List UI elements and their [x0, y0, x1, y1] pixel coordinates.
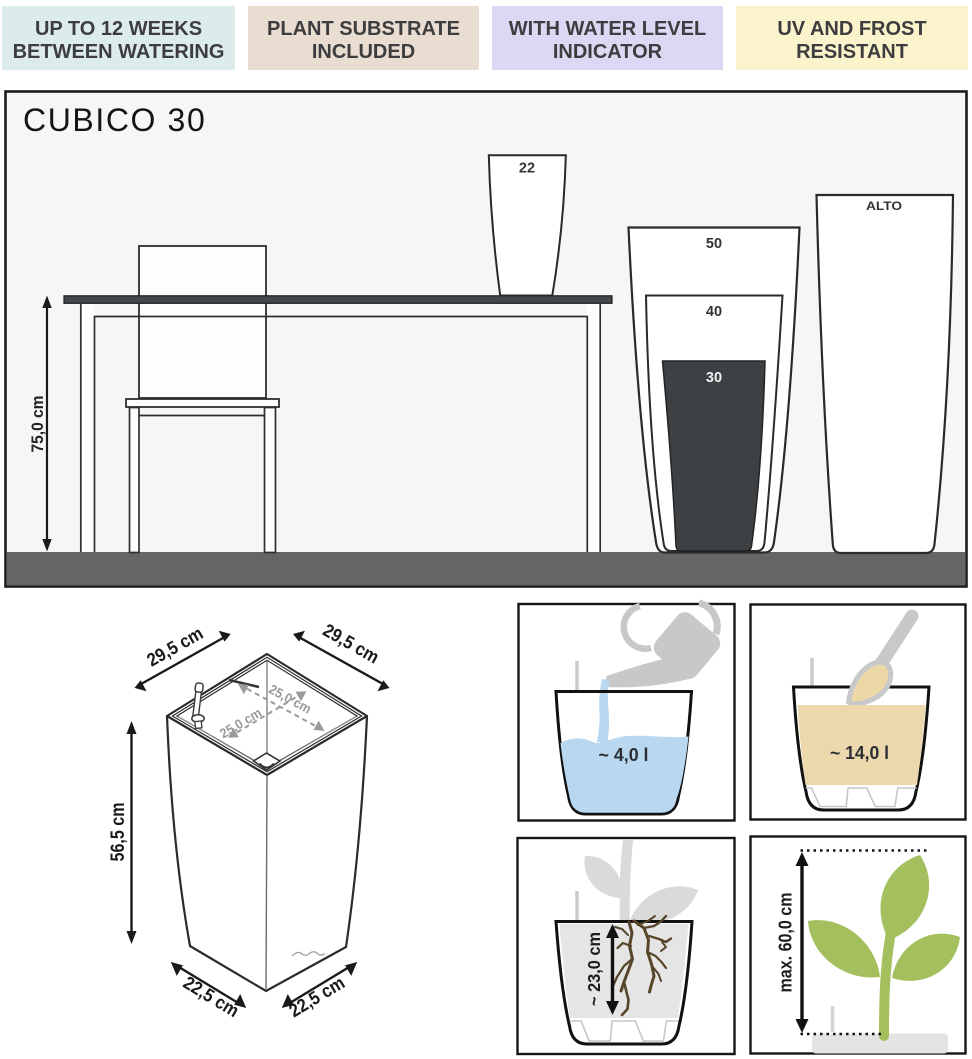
svg-text:75,0 cm: 75,0 cm: [29, 396, 47, 453]
svg-text:UP TO 12 WEEKS: UP TO 12 WEEKS: [35, 18, 202, 40]
svg-text:max. 60,0 cm: max. 60,0 cm: [776, 893, 796, 993]
svg-text:BETWEEN WATERING: BETWEEN WATERING: [13, 41, 225, 63]
svg-text:CUBICO 30: CUBICO 30: [23, 102, 206, 138]
svg-text:WITH WATER LEVEL: WITH WATER LEVEL: [509, 18, 706, 40]
svg-text:~ 4,0 l: ~ 4,0 l: [599, 745, 649, 765]
svg-text:PLANT SUBSTRATE: PLANT SUBSTRATE: [267, 18, 460, 40]
svg-text:50: 50: [706, 236, 722, 252]
svg-text:INDICATOR: INDICATOR: [553, 41, 663, 63]
svg-text:UV AND FROST: UV AND FROST: [777, 18, 926, 40]
svg-text:INCLUDED: INCLUDED: [312, 41, 415, 63]
svg-text:~ 23,0 cm: ~ 23,0 cm: [584, 932, 604, 1006]
svg-text:RESISTANT: RESISTANT: [796, 41, 908, 63]
svg-text:ALTO: ALTO: [866, 199, 902, 213]
svg-text:~ 14,0 l: ~ 14,0 l: [830, 743, 889, 763]
svg-text:40: 40: [706, 304, 722, 320]
svg-text:56,5 cm: 56,5 cm: [108, 803, 129, 862]
svg-text:30: 30: [706, 370, 722, 386]
svg-text:22: 22: [519, 161, 535, 177]
